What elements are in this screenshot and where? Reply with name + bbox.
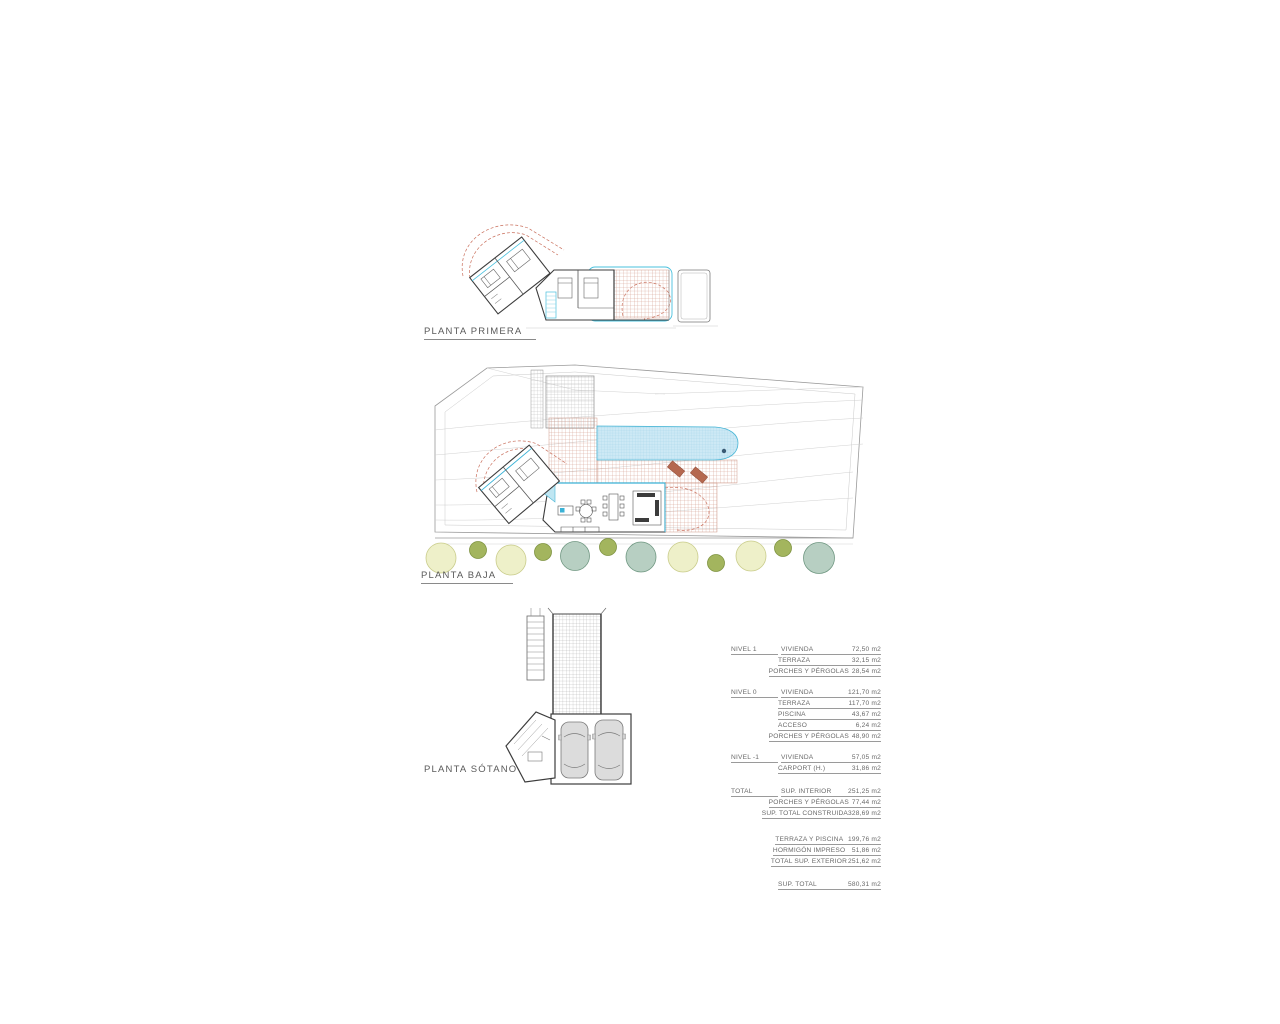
area-value: 57,05 m2 [841, 754, 881, 763]
area-label: TERRAZA [778, 657, 841, 666]
area-label: TERRAZA Y PISCINA [775, 836, 843, 845]
table-row: SUP. TOTAL 580,31 m2 [731, 879, 881, 890]
area-value: 48,90 m2 [849, 733, 881, 742]
table-row: HORMIGÓN IMPRESO 51,86 m2 [731, 845, 881, 856]
planta-sotano-drawing [498, 606, 660, 792]
car-icon [559, 722, 591, 778]
area-label: SUP. TOTAL [778, 881, 841, 890]
planta-baja-label-text: PLANTA BAJA [421, 570, 496, 581]
table-row: PISCINA 43,67 m2 [731, 709, 881, 720]
area-label: VIVIENDA [781, 689, 841, 698]
area-label: PORCHES Y PÉRGOLAS [769, 733, 849, 742]
table-row: PORCHES Y PÉRGOLAS 28,54 m2 [731, 666, 881, 677]
table-row: TERRAZA 117,70 m2 [731, 698, 881, 709]
area-level: TOTAL [731, 788, 778, 797]
table-row: TERRAZA Y PISCINA 199,76 m2 [731, 834, 881, 845]
area-value: 28,54 m2 [849, 668, 881, 677]
area-value: 251,25 m2 [841, 788, 881, 797]
area-label: CARPORT (H.) [778, 765, 841, 774]
table-row: ACCESO 6,24 m2 [731, 720, 881, 731]
planta-primera-label: PLANTA PRIMERA [424, 326, 536, 340]
area-label: SUP. TOTAL CONSTRUIDA [762, 810, 848, 819]
area-label: PISCINA [778, 711, 841, 720]
area-value: 251,62 m2 [847, 858, 881, 867]
area-value: 72,50 m2 [841, 646, 881, 655]
table-row: TERRAZA 32,15 m2 [731, 655, 881, 666]
area-level: NIVEL 1 [731, 646, 778, 655]
area-value: 328,69 m2 [848, 810, 881, 819]
planta-primera-label-text: PLANTA PRIMERA [424, 326, 522, 337]
area-value: 43,67 m2 [841, 711, 881, 720]
planta-sotano-label: PLANTA SÓTANO [424, 764, 517, 777]
table-row: SUP. TOTAL CONSTRUIDA 328,69 m2 [731, 808, 881, 819]
area-value: 31,86 m2 [841, 765, 881, 774]
table-row: TOTAL SUP. INTERIOR 251,25 m2 [731, 786, 881, 797]
table-row: CARPORT (H.) 31,86 m2 [731, 763, 881, 774]
scanned-plan-sheet: PLANTA PRIMERA [0, 0, 1280, 1024]
planta-sotano-label-text: PLANTA SÓTANO [424, 764, 517, 775]
area-value: 580,31 m2 [841, 881, 881, 890]
planta-baja-drawing [425, 360, 870, 596]
area-label: HORMIGÓN IMPRESO [773, 847, 845, 856]
area-value: 6,24 m2 [841, 722, 881, 731]
area-label: TERRAZA [778, 700, 841, 709]
table-row: NIVEL 1 VIVIENDA 72,50 m2 [731, 644, 881, 655]
area-value: 117,70 m2 [841, 700, 881, 709]
area-level: NIVEL -1 [731, 754, 778, 763]
area-value: 121,70 m2 [841, 689, 881, 698]
area-label: VIVIENDA [781, 646, 841, 655]
area-label: TOTAL SUP. EXTERIOR [771, 858, 847, 867]
area-value: 199,76 m2 [843, 836, 881, 845]
area-label: PORCHES Y PÉRGOLAS [769, 799, 849, 808]
area-summary-table: NIVEL 1 VIVIENDA 72,50 m2 TERRAZA 32,15 … [731, 644, 881, 890]
area-value: 51,86 m2 [845, 847, 881, 856]
table-row: NIVEL 0 VIVIENDA 121,70 m2 [731, 687, 881, 698]
table-row: PORCHES Y PÉRGOLAS 77,44 m2 [731, 797, 881, 808]
area-label: PORCHES Y PÉRGOLAS [769, 668, 849, 677]
table-row: NIVEL -1 VIVIENDA 57,05 m2 [731, 752, 881, 763]
planta-baja-label: PLANTA BAJA [421, 570, 513, 584]
area-value: 32,15 m2 [841, 657, 881, 666]
planta-primera-drawing [418, 208, 768, 336]
area-label: ACCESO [778, 722, 841, 731]
area-label: VIVIENDA [781, 754, 841, 763]
table-row: TOTAL SUP. EXTERIOR 251,62 m2 [731, 856, 881, 867]
area-level: NIVEL 0 [731, 689, 778, 698]
area-label: SUP. INTERIOR [781, 788, 841, 797]
table-row: PORCHES Y PÉRGOLAS 48,90 m2 [731, 731, 881, 742]
area-value: 77,44 m2 [849, 799, 881, 808]
car-icon [593, 720, 626, 780]
